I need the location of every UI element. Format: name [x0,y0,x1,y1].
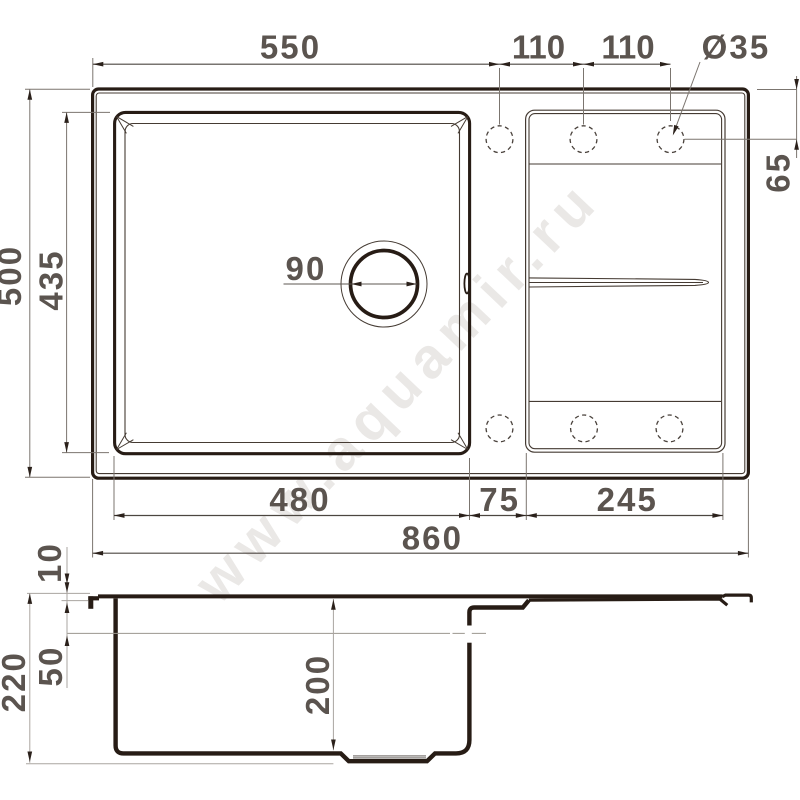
svg-text:65: 65 [760,152,797,193]
svg-text:550: 550 [260,28,321,65]
svg-text:500: 500 [0,245,28,306]
svg-text:480: 480 [269,481,330,518]
svg-text:90: 90 [286,250,327,287]
svg-text:110: 110 [512,28,565,65]
svg-text:200: 200 [299,654,336,715]
svg-text:435: 435 [33,249,70,310]
svg-text:10: 10 [31,542,68,583]
svg-text:245: 245 [597,481,658,518]
svg-text:75: 75 [479,481,520,518]
svg-text:50: 50 [32,646,69,687]
svg-text:www.aquamir.ru: www.aquamir.ru [182,167,613,616]
svg-text:110: 110 [601,28,654,65]
svg-text:860: 860 [402,520,463,557]
svg-text:220: 220 [0,651,32,712]
svg-text:Ø35: Ø35 [702,28,771,65]
